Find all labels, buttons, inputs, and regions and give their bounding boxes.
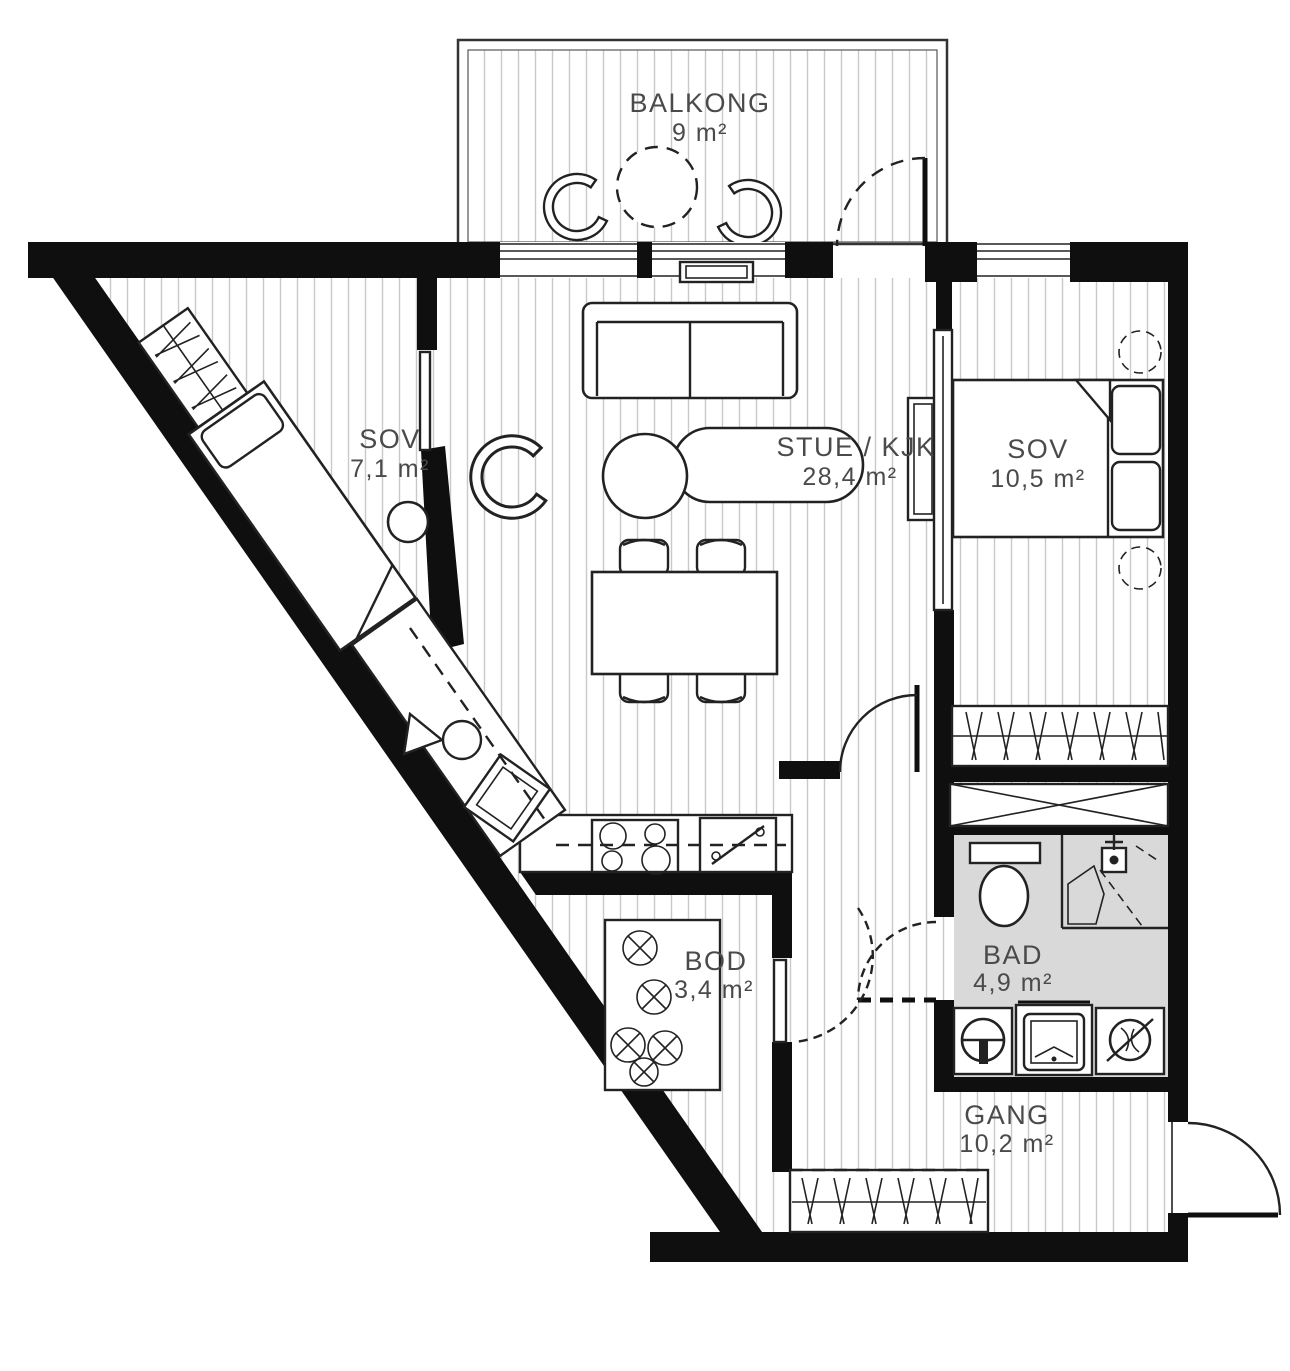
top-wall-segment — [28, 242, 500, 278]
ventilation-shaft — [950, 784, 1168, 826]
room-label-stue-kjk: STUE / KJK — [776, 432, 935, 462]
bath-bottom-wall — [936, 1077, 1168, 1092]
partition-wall-top — [936, 278, 952, 330]
right-wall-upper — [1168, 242, 1188, 1122]
wardrobe-wall — [936, 765, 1168, 782]
living-hall-wall-stub — [779, 761, 840, 779]
room-area-balkong: 9 m² — [672, 119, 728, 147]
storage-wall-stub-lower — [772, 1042, 792, 1172]
room-label-bad: BAD — [983, 940, 1043, 970]
hall-wardrobe — [790, 1170, 988, 1232]
room-area-gang: 10,2 m² — [959, 1130, 1054, 1158]
window-3 — [977, 242, 1070, 278]
window-1 — [500, 242, 637, 278]
top-wall-segment — [925, 242, 977, 282]
kitchen-storage-wall — [520, 872, 792, 895]
room-label-gang: GANG — [964, 1100, 1050, 1130]
room-area-bod: 3,4 m² — [674, 976, 754, 1004]
coffee-table-round — [603, 434, 687, 518]
room-label-balkong: BALKONG — [629, 88, 770, 118]
bathroom-sink — [954, 1008, 1012, 1074]
room-area-sov-left: 7,1 m² — [350, 455, 430, 483]
storage-wall-stub-upper — [772, 895, 792, 958]
balcony-table — [617, 147, 697, 227]
room-label-sov-left: SOV — [359, 424, 421, 454]
top-wall-segment — [785, 242, 833, 278]
entrance-door — [1172, 1122, 1280, 1215]
dryer — [1096, 1008, 1164, 1074]
wardrobe-right — [952, 706, 1168, 766]
bath-top-wall — [936, 826, 1168, 835]
room-area-stue-kjk: 28,4 m² — [802, 463, 897, 491]
top-wall-segment — [637, 242, 652, 278]
room-label-sov-right: SOV — [1007, 434, 1069, 464]
sofa — [583, 303, 797, 398]
cooktop — [592, 820, 678, 874]
room-area-sov-right: 10,5 m² — [990, 465, 1085, 493]
washing-machine — [1016, 1002, 1092, 1075]
bedroom-left-door — [420, 352, 430, 450]
bedside-stool — [388, 502, 428, 542]
room-label-bod: BOD — [684, 946, 747, 976]
dining-table — [592, 572, 777, 674]
room-area-bad: 4,9 m² — [973, 969, 1053, 997]
windows — [500, 242, 1070, 282]
sliding-glass-panel — [934, 330, 952, 610]
bedroom-left-wall-stub — [417, 278, 437, 350]
floorplan-canvas: BALKONG 9 m² SOV 7,1 m² STUE / KJK 28,4 … — [0, 0, 1290, 1371]
floor-plan-svg: BALKONG 9 m² SOV 7,1 m² STUE / KJK 28,4 … — [0, 0, 1290, 1371]
window-bench — [680, 262, 753, 282]
